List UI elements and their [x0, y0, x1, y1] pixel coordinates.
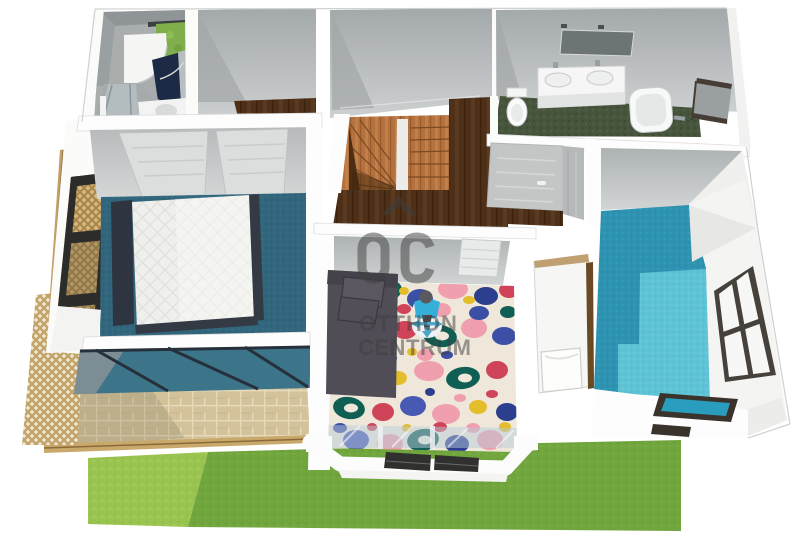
svg-text:OTTHON: OTTHON: [359, 311, 458, 336]
svg-text:CENTRUM: CENTRUM: [358, 335, 472, 360]
